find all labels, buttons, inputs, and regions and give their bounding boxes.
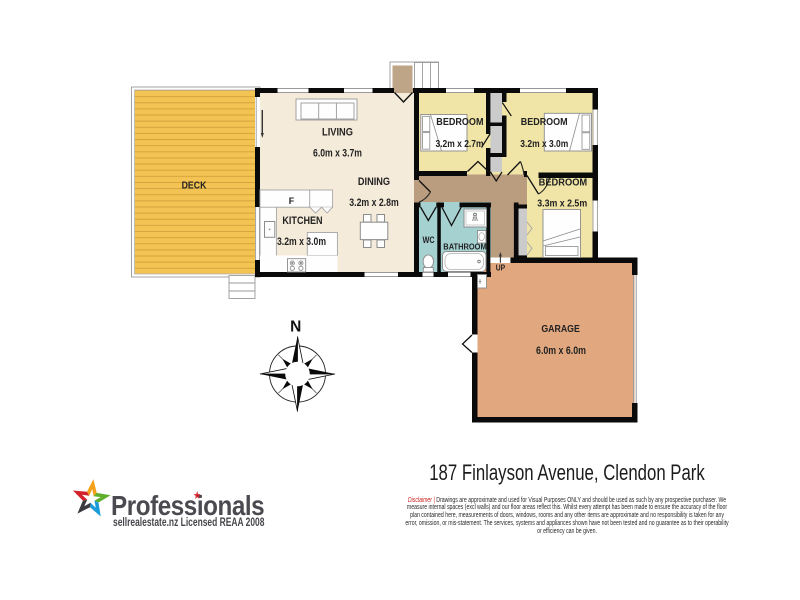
- svg-text:WC: WC: [423, 235, 436, 245]
- svg-text:GARAGE: GARAGE: [541, 323, 580, 335]
- svg-text:3.2m x 3.0m: 3.2m x 3.0m: [277, 236, 326, 248]
- svg-text:3.2m x 3.0m: 3.2m x 3.0m: [520, 138, 568, 150]
- svg-text:N: N: [290, 319, 301, 336]
- svg-text:DECK: DECK: [182, 179, 207, 191]
- svg-text:BEDROOM: BEDROOM: [436, 116, 483, 128]
- svg-text:KITCHEN: KITCHEN: [282, 215, 322, 227]
- svg-text:BEDROOM: BEDROOM: [521, 116, 568, 128]
- svg-text:LIVING: LIVING: [322, 126, 353, 138]
- svg-text:3.3m x 2.5m: 3.3m x 2.5m: [537, 198, 587, 210]
- svg-text:UP: UP: [496, 262, 506, 272]
- svg-text:6.0m x 6.0m: 6.0m x 6.0m: [536, 345, 586, 357]
- svg-text:BATHROOM: BATHROOM: [443, 242, 486, 252]
- svg-text:F: F: [289, 196, 295, 207]
- svg-text:3.2m x 2.7m: 3.2m x 2.7m: [436, 138, 484, 150]
- svg-text:DINING: DINING: [358, 176, 390, 188]
- svg-text:3.2m x 2.8m: 3.2m x 2.8m: [349, 197, 399, 209]
- svg-text:6.0m x 3.7m: 6.0m x 3.7m: [313, 148, 362, 160]
- svg-text:BEDROOM: BEDROOM: [539, 176, 588, 188]
